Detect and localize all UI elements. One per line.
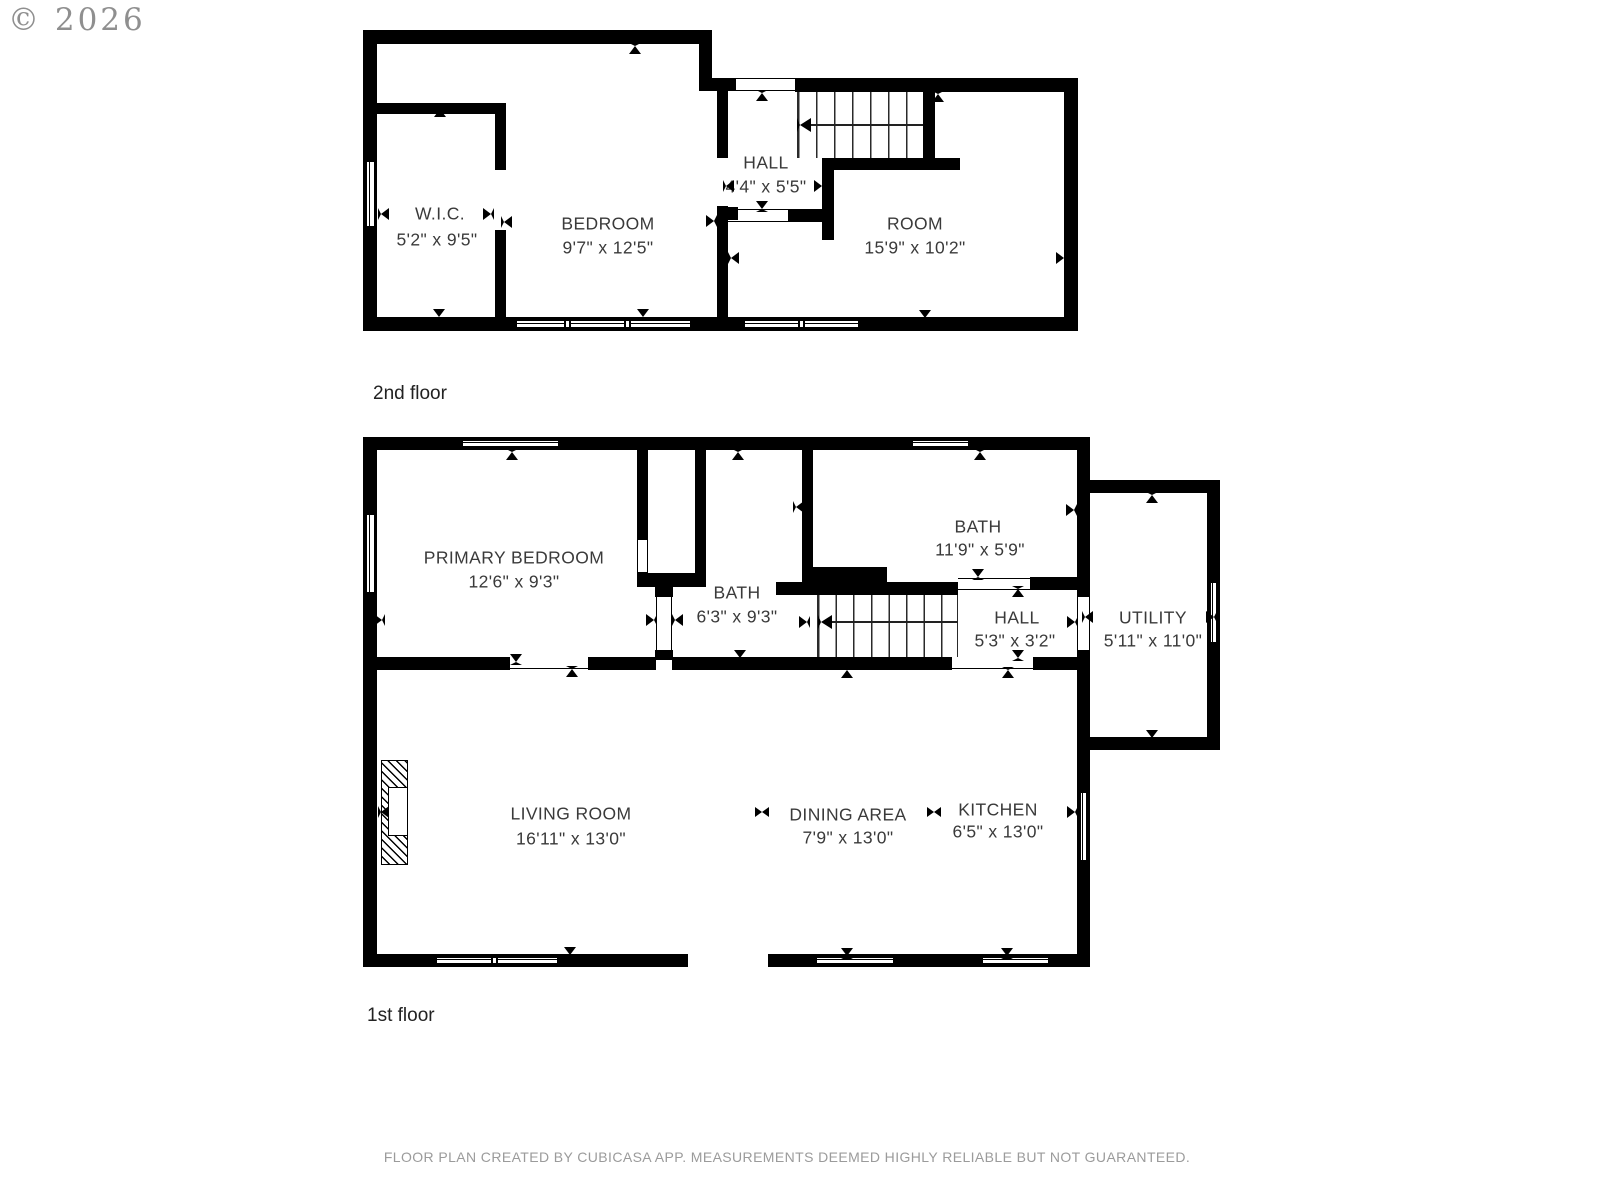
door-marker-icon <box>637 309 649 320</box>
room-label-wic: W.I.C. <box>415 204 465 225</box>
door-marker-icon <box>974 449 986 460</box>
door-marker-icon <box>1012 650 1024 661</box>
window-divider <box>564 321 571 327</box>
room-label-kitchen: KITCHEN <box>958 800 1038 821</box>
wall <box>672 657 952 670</box>
door-marker-icon <box>629 43 641 54</box>
window <box>978 956 1053 965</box>
room-label-hall-1f: HALL <box>994 608 1039 629</box>
door-marker-icon <box>756 90 768 101</box>
room-label-room: ROOM <box>887 214 943 235</box>
door-marker-icon <box>706 215 717 227</box>
window <box>1079 788 1088 865</box>
arrow-right-icon <box>755 807 762 817</box>
door-opening <box>495 230 506 231</box>
door-opening <box>495 169 506 170</box>
room-label-utility: UTILITY <box>1119 608 1187 629</box>
fireplace-firebox <box>388 787 408 836</box>
door-marker-icon <box>732 449 744 460</box>
wall <box>717 207 728 317</box>
door-marker-icon <box>378 806 389 818</box>
door-opening <box>736 78 795 79</box>
wall <box>495 231 506 317</box>
door-opening <box>952 668 1033 669</box>
room-label-living-room: LIVING ROOM <box>510 804 631 825</box>
staircase <box>817 595 958 657</box>
door-marker-icon <box>434 106 446 117</box>
door-marker-icon <box>1066 504 1077 516</box>
room-label-hall-2f: HALL <box>743 153 788 174</box>
copyright-text: © 2026 <box>8 2 146 38</box>
door-marker-icon <box>564 947 576 958</box>
wall <box>822 158 834 240</box>
door-opening <box>637 540 638 573</box>
wall <box>637 450 648 540</box>
wall <box>795 78 1078 92</box>
door-marker-icon <box>672 614 683 626</box>
door-marker-icon <box>1067 806 1078 818</box>
door-marker-icon <box>378 208 389 220</box>
door-marker-icon <box>566 666 578 677</box>
stair-arrow-icon <box>818 615 832 629</box>
door-marker-icon <box>793 501 804 513</box>
wall <box>823 158 960 170</box>
wall <box>363 657 510 670</box>
door-marker-icon <box>841 667 853 678</box>
measure-arrow-icon <box>1056 252 1067 264</box>
door-opening <box>1089 597 1090 650</box>
stair-direction-line <box>806 124 923 126</box>
room-dims-room: 15'9" x 10'2" <box>864 238 965 259</box>
room-dims-bath-large: 11'9" x 5'9" <box>935 540 1025 561</box>
room-dims-dining-area: 7'9" x 13'0" <box>802 828 893 849</box>
window <box>908 439 973 448</box>
door-opening <box>717 206 728 207</box>
door-opening <box>717 157 728 158</box>
wall <box>788 209 834 222</box>
door-marker-icon <box>374 614 385 626</box>
room-dims-bath-small: 6'3" x 9'3" <box>697 607 778 628</box>
wall <box>717 91 728 157</box>
wall <box>699 78 736 91</box>
door-marker-icon <box>799 616 810 628</box>
window <box>365 510 376 597</box>
window-divider <box>491 958 498 963</box>
floor-title-1st: 1st floor <box>367 1005 435 1027</box>
room-label-bedroom: BEDROOM <box>561 214 654 235</box>
arrow-right-icon <box>927 807 934 817</box>
window-divider <box>624 321 631 327</box>
wall <box>1064 78 1078 331</box>
footer-disclaimer: FLOOR PLAN CREATED BY CUBICASA APP. MEAS… <box>384 1149 1190 1165</box>
wall <box>588 657 656 670</box>
window <box>365 157 376 231</box>
door-marker-icon <box>919 310 931 321</box>
measure-arrow-icon <box>927 807 941 817</box>
wall <box>1033 657 1090 670</box>
door-marker-icon <box>932 91 944 102</box>
wall <box>655 585 673 597</box>
room-dims-kitchen: 6'5" x 13'0" <box>952 822 1043 843</box>
wall <box>776 582 958 595</box>
door-marker-icon <box>1067 616 1078 628</box>
wall <box>1030 577 1077 590</box>
door-opening <box>647 540 648 573</box>
door-marker-icon <box>734 650 746 661</box>
door-marker-icon <box>506 449 518 460</box>
door-marker-icon <box>1002 667 1014 678</box>
measure-arrow-icon <box>755 807 769 817</box>
stair-arrow-icon <box>797 118 811 132</box>
floor-title-2nd: 2nd floor <box>373 383 447 405</box>
door-marker-icon <box>972 569 984 580</box>
wall <box>363 317 1078 331</box>
arrow-left-icon <box>762 807 769 817</box>
window <box>458 439 563 448</box>
window <box>812 956 898 965</box>
door-marker-icon <box>1012 586 1024 597</box>
door-marker-icon <box>433 309 445 320</box>
wall <box>802 567 887 582</box>
door-marker-icon <box>756 201 768 212</box>
measure-arrow-icon <box>814 180 825 192</box>
room-dims-bedroom: 9'7" x 12'5" <box>562 238 653 259</box>
window-divider <box>798 321 805 327</box>
wall <box>1077 437 1090 597</box>
window <box>512 319 695 329</box>
floorplan-canvas: © 2026 W.I.C. 5'2" x 9'5" BEDROOM 9'7" x… <box>0 0 1600 1200</box>
room-dims-primary-bedroom: 12'6" x 9'3" <box>468 572 559 593</box>
door-marker-icon <box>483 208 494 220</box>
door-marker-icon <box>1146 492 1158 503</box>
room-label-dining-area: DINING AREA <box>789 805 906 826</box>
room-label-bath-small: BATH <box>714 583 761 604</box>
room-dims-utility: 5'11" x 11'0" <box>1104 631 1203 652</box>
window <box>432 956 562 965</box>
room-dims-wic: 5'2" x 9'5" <box>397 230 478 251</box>
door-opening <box>958 578 1030 579</box>
door-marker-icon <box>510 654 522 665</box>
door-opening <box>728 221 788 222</box>
window <box>740 319 863 329</box>
room-dims-hall-2f: 4'4" x 5'5" <box>726 177 807 198</box>
door-marker-icon <box>1082 611 1093 623</box>
arrow-left-icon <box>934 807 941 817</box>
door-marker-icon <box>501 216 512 228</box>
room-label-primary-bedroom: PRIMARY BEDROOM <box>424 548 604 569</box>
door-marker-icon <box>1206 611 1217 623</box>
room-dims-hall-1f: 5'3" x 3'2" <box>975 631 1056 652</box>
wall <box>695 450 706 587</box>
measure-arrow-icon <box>723 180 734 192</box>
wall <box>363 30 712 44</box>
measure-arrow-icon <box>728 252 739 264</box>
stair-direction-line <box>827 621 958 623</box>
room-dims-living-room: 16'11" x 13'0" <box>516 829 626 850</box>
door-marker-icon <box>1001 948 1013 959</box>
room-label-bath-large: BATH <box>955 517 1002 538</box>
door-marker-icon <box>841 948 853 959</box>
door-marker-icon <box>1146 730 1158 741</box>
wall <box>495 103 506 170</box>
door-marker-icon <box>646 614 657 626</box>
